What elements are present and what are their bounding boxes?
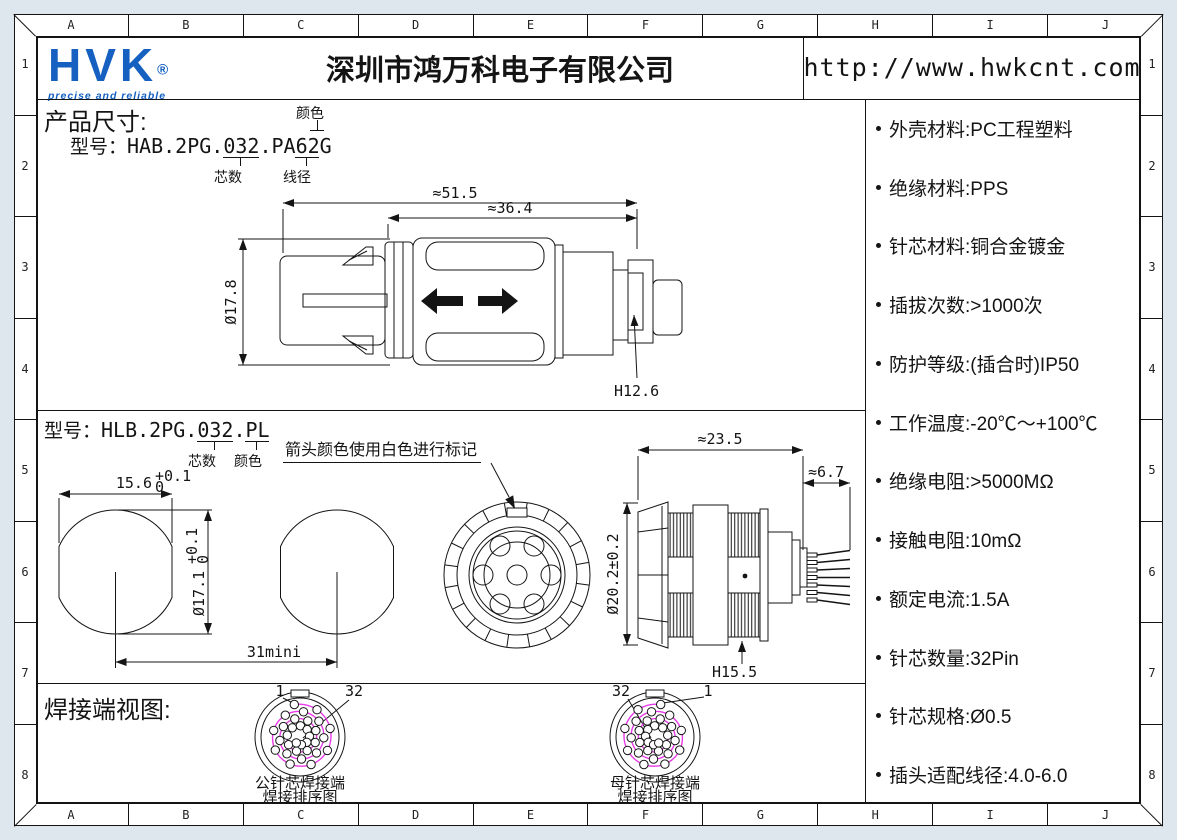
- dim-flat-tol-dn: 0: [155, 478, 164, 496]
- thread-section: [728, 593, 760, 637]
- weld-end-views: 1 32 公针芯焊接端 焊接排序图 32 1 母针芯焊接端 焊接排序图: [36, 683, 865, 804]
- male-pin-spiral: [270, 700, 335, 768]
- spec-text: 插拔次数:>1000次: [889, 291, 1043, 318]
- spec-text: 绝缘材料:PPS: [889, 174, 1008, 201]
- solder-cup: [270, 726, 278, 734]
- solder-cup: [671, 736, 679, 744]
- panel-views-drawing: 15.6 +0.1 0 Ø17.1 +0.1 0 31mini ≈23.5 ≈6…: [36, 410, 865, 683]
- solder-cup: [649, 755, 657, 763]
- dim-dia-tol-dn: 0: [194, 555, 212, 564]
- bullet-icon: [876, 185, 881, 190]
- grid-row-label: 8: [1141, 725, 1163, 827]
- grid-col-label: F: [589, 14, 704, 36]
- bullet-icon: [876, 537, 881, 542]
- solder-cup: [664, 731, 672, 739]
- callout-tick: [310, 130, 324, 131]
- male-last-pin-label: 32: [345, 682, 363, 700]
- male-caption-2: 焊接排序图: [262, 789, 337, 806]
- callout-tick: [240, 158, 241, 166]
- female-first-pin-label: 32: [612, 682, 630, 700]
- grid-row-label: 7: [14, 623, 36, 725]
- solder-cup: [621, 724, 629, 732]
- bullet-icon: [876, 772, 881, 777]
- callout-color: 颜色: [296, 103, 324, 123]
- face-outer-ring: [444, 502, 590, 648]
- spec-text: 针芯数量:32Pin: [889, 644, 1019, 671]
- spec-text: 针芯规格:Ø0.5: [889, 702, 1011, 729]
- bullet-icon: [876, 596, 881, 601]
- spec-text: 接触电阻:10mΩ: [889, 526, 1021, 553]
- grid-col-label: I: [933, 804, 1048, 826]
- face-hole: [524, 536, 544, 556]
- solder-cup: [632, 717, 640, 725]
- grid-col-label: E: [474, 804, 589, 826]
- grid-col-label: B: [129, 14, 244, 36]
- grid-col-label: C: [244, 804, 359, 826]
- model-label: 型号：: [70, 137, 127, 158]
- male-keyway: [291, 690, 309, 697]
- spec-item: 额定电流:1.5A: [866, 569, 1139, 628]
- model-value: HAB.2PG.032.PA62G: [127, 134, 332, 158]
- solder-cup: [647, 708, 655, 716]
- solder-cup: [659, 724, 667, 732]
- grid-row-label: 2: [14, 116, 36, 218]
- solder-cup: [312, 749, 320, 757]
- callout-wire: 线径: [283, 167, 311, 187]
- solder-cup: [271, 746, 279, 754]
- solder-cup: [286, 760, 294, 768]
- callout-underline: [295, 157, 319, 158]
- solder-cup: [323, 746, 331, 754]
- dim-diameter: Ø17.8: [222, 279, 240, 324]
- solder-cup: [655, 739, 663, 747]
- rear-insulator: [768, 532, 792, 603]
- spec-item: 工作温度:-20℃～+100℃: [866, 393, 1139, 452]
- spec-item: 插头适配线径:4.0-6.0: [866, 745, 1139, 804]
- bullet-icon: [876, 243, 881, 248]
- grid-row-label: 5: [1141, 420, 1163, 522]
- bullet-icon: [876, 713, 881, 718]
- dim-height: H12.6: [614, 382, 659, 400]
- bullet-icon: [876, 655, 881, 660]
- bullet-icon: [876, 361, 881, 366]
- solder-cup: [297, 755, 305, 763]
- plug-front-shell: [280, 256, 385, 345]
- spec-item: 绝缘电阻:>5000MΩ: [866, 452, 1139, 511]
- solder-cup: [640, 760, 648, 768]
- solder-cup: [283, 750, 291, 758]
- solder-cup: [326, 724, 334, 732]
- face-insert: [484, 542, 550, 608]
- logo-text: HVK: [48, 39, 157, 91]
- cable-boot: [653, 280, 682, 335]
- dim-cutout-dia: Ø17.1: [190, 571, 208, 616]
- spec-text: 插头适配线径:4.0-6.0: [889, 761, 1067, 788]
- logo-tagline: precise and reliable: [48, 90, 168, 102]
- spec-text: 外壳材料:PC工程塑料: [889, 115, 1073, 142]
- solder-cup: [664, 750, 672, 758]
- grip-pad-bottom: [426, 333, 544, 361]
- face-hole: [490, 536, 510, 556]
- website-cell-divider: [803, 36, 804, 99]
- solder-cup: [288, 724, 296, 732]
- plug-key-slot: [303, 294, 387, 307]
- grid-row-label: 1: [14, 14, 36, 116]
- dim-spacing: 31mini: [247, 643, 301, 661]
- grid-col-label: I: [933, 14, 1048, 36]
- dim-rear-length: ≈6.7: [808, 463, 844, 481]
- solder-cup: [292, 739, 300, 747]
- grid-col-label: D: [359, 14, 474, 36]
- spec-text: 绝缘电阻:>5000MΩ: [889, 467, 1054, 494]
- note-leader: [491, 463, 509, 497]
- female-keyway: [646, 690, 664, 697]
- solder-cup: [313, 706, 321, 714]
- face-hole: [507, 565, 527, 585]
- solder-cup: [320, 734, 328, 742]
- company-name: 深圳市鸿万科电子有限公司: [200, 36, 800, 99]
- grid-row-label: 7: [1141, 623, 1163, 725]
- spec-item: 针芯数量:32Pin: [866, 628, 1139, 687]
- solder-cup: [643, 717, 651, 725]
- thread-section: [728, 513, 760, 557]
- face-notches: [445, 503, 590, 648]
- dim-height: H15.5: [712, 663, 757, 681]
- grid-row-label: 4: [14, 319, 36, 421]
- rear-housing: [563, 252, 613, 355]
- solder-pins: [807, 551, 850, 605]
- female-caption-2: 焊接排序图: [617, 789, 692, 806]
- bullet-icon: [876, 478, 881, 483]
- face-hole: [541, 565, 561, 585]
- note-arrowhead-icon: [505, 495, 515, 509]
- solder-cup: [627, 734, 635, 742]
- spec-text: 额定电流:1.5A: [889, 585, 1009, 612]
- cable-gland: [628, 260, 653, 343]
- spec-item: 接触电阻:10mΩ: [866, 510, 1139, 569]
- grid-col-label: G: [703, 14, 818, 36]
- solder-cup: [299, 708, 307, 716]
- center-block: [693, 505, 728, 645]
- index-dot: [743, 574, 748, 579]
- grid-col-label: C: [244, 14, 359, 36]
- spec-text: 针芯材料:铜合金镀金: [889, 232, 1065, 259]
- bullet-icon: [876, 420, 881, 425]
- spec-item: 绝缘材料:PPS: [866, 158, 1139, 217]
- solder-cup: [307, 760, 315, 768]
- callout-tick: [317, 120, 318, 130]
- spec-item: 防护等级:(插合时)IP50: [866, 334, 1139, 393]
- callout-cores: 芯数: [214, 167, 242, 187]
- solder-cup: [657, 700, 665, 708]
- face-hole: [490, 594, 510, 614]
- solder-cup: [284, 741, 292, 749]
- spec-item: 外壳材料:PC工程塑料: [866, 99, 1139, 158]
- company-website: http://www.hwkcnt.com: [804, 36, 1140, 99]
- female-last-pin-label: 1: [703, 682, 712, 700]
- dim-overall: ≈51.5: [432, 184, 477, 202]
- solder-cup: [634, 706, 642, 714]
- spec-item: 针芯材料:铜合金镀金: [866, 217, 1139, 276]
- solder-cup: [315, 717, 323, 725]
- solder-cup: [667, 722, 675, 730]
- face-keyway: [507, 508, 527, 517]
- unlock-arrow-icon: [421, 288, 463, 314]
- solder-cup: [661, 760, 669, 768]
- company-logo: HVK® precise and reliable: [48, 42, 168, 102]
- plug-side-view-drawing: ≈51.5 ≈36.4 Ø17.8 H12.6: [230, 185, 800, 405]
- face-hole: [473, 565, 493, 585]
- bullet-icon: [876, 126, 881, 131]
- solder-cup: [662, 741, 670, 749]
- dim-length: ≈23.5: [697, 430, 742, 448]
- solder-cup: [676, 746, 684, 754]
- face-hole: [524, 594, 544, 614]
- thread-section: [668, 513, 693, 557]
- callout-underline: [223, 157, 259, 158]
- grid-col-label: G: [703, 804, 818, 826]
- female-pin-spiral: [621, 700, 686, 768]
- male-first-pin-label: 1: [275, 682, 284, 700]
- dim-flat: 15.6: [116, 474, 152, 492]
- thread-section: [668, 593, 693, 637]
- solder-cup: [677, 726, 685, 734]
- callout-tick: [306, 158, 307, 166]
- solder-cup: [634, 749, 642, 757]
- solder-cup: [666, 711, 674, 719]
- grid-row-label: 8: [14, 725, 36, 827]
- dim-body: ≈36.4: [487, 199, 532, 217]
- grid-row-label: 3: [1141, 217, 1163, 319]
- registered-mark-icon: ®: [157, 62, 168, 79]
- leader-height: [634, 315, 637, 378]
- grid-row-label: 6: [1141, 522, 1163, 624]
- solder-cup: [283, 731, 291, 739]
- grid-row-label: 5: [14, 420, 36, 522]
- solder-cup: [279, 722, 287, 730]
- grid-row-label: 1: [1141, 14, 1163, 116]
- grid-col-label: B: [129, 804, 244, 826]
- grip-pad-top: [426, 242, 544, 270]
- grid-col-label: E: [474, 14, 589, 36]
- solder-cup: [276, 736, 284, 744]
- spec-text: 防护等级:(插合时)IP50: [889, 350, 1079, 377]
- grid-col-label: H: [818, 804, 933, 826]
- grid-col-label: H: [818, 14, 933, 36]
- bullet-icon: [876, 302, 881, 307]
- grid-col-label: D: [359, 804, 474, 826]
- spec-item: 针芯规格:Ø0.5: [866, 687, 1139, 746]
- solder-cup: [304, 717, 312, 725]
- solder-cup: [281, 711, 289, 719]
- grip-collar: [385, 242, 413, 358]
- grid-row-label: 4: [1141, 319, 1163, 421]
- lock-arrow-icon: [478, 288, 518, 314]
- grid-col-label: F: [589, 804, 704, 826]
- grid-row-label: 2: [1141, 116, 1163, 218]
- drawing-sheet-page: ABCDEFGHIJ ABCDEFGHIJ 12345678 12345678 …: [0, 0, 1177, 840]
- spec-text: 工作温度:-20℃～+100℃: [889, 409, 1098, 436]
- solder-cup: [290, 700, 298, 708]
- model-number-plug: 型号：HAB.2PG.032.PA62G: [70, 132, 332, 159]
- dim-mount-dia: Ø20.2±0.2: [604, 533, 622, 614]
- grid-row-label: 3: [14, 217, 36, 319]
- grid-row-label: 6: [14, 522, 36, 624]
- spec-item: 插拔次数:>1000次: [866, 275, 1139, 334]
- solder-cup: [623, 746, 631, 754]
